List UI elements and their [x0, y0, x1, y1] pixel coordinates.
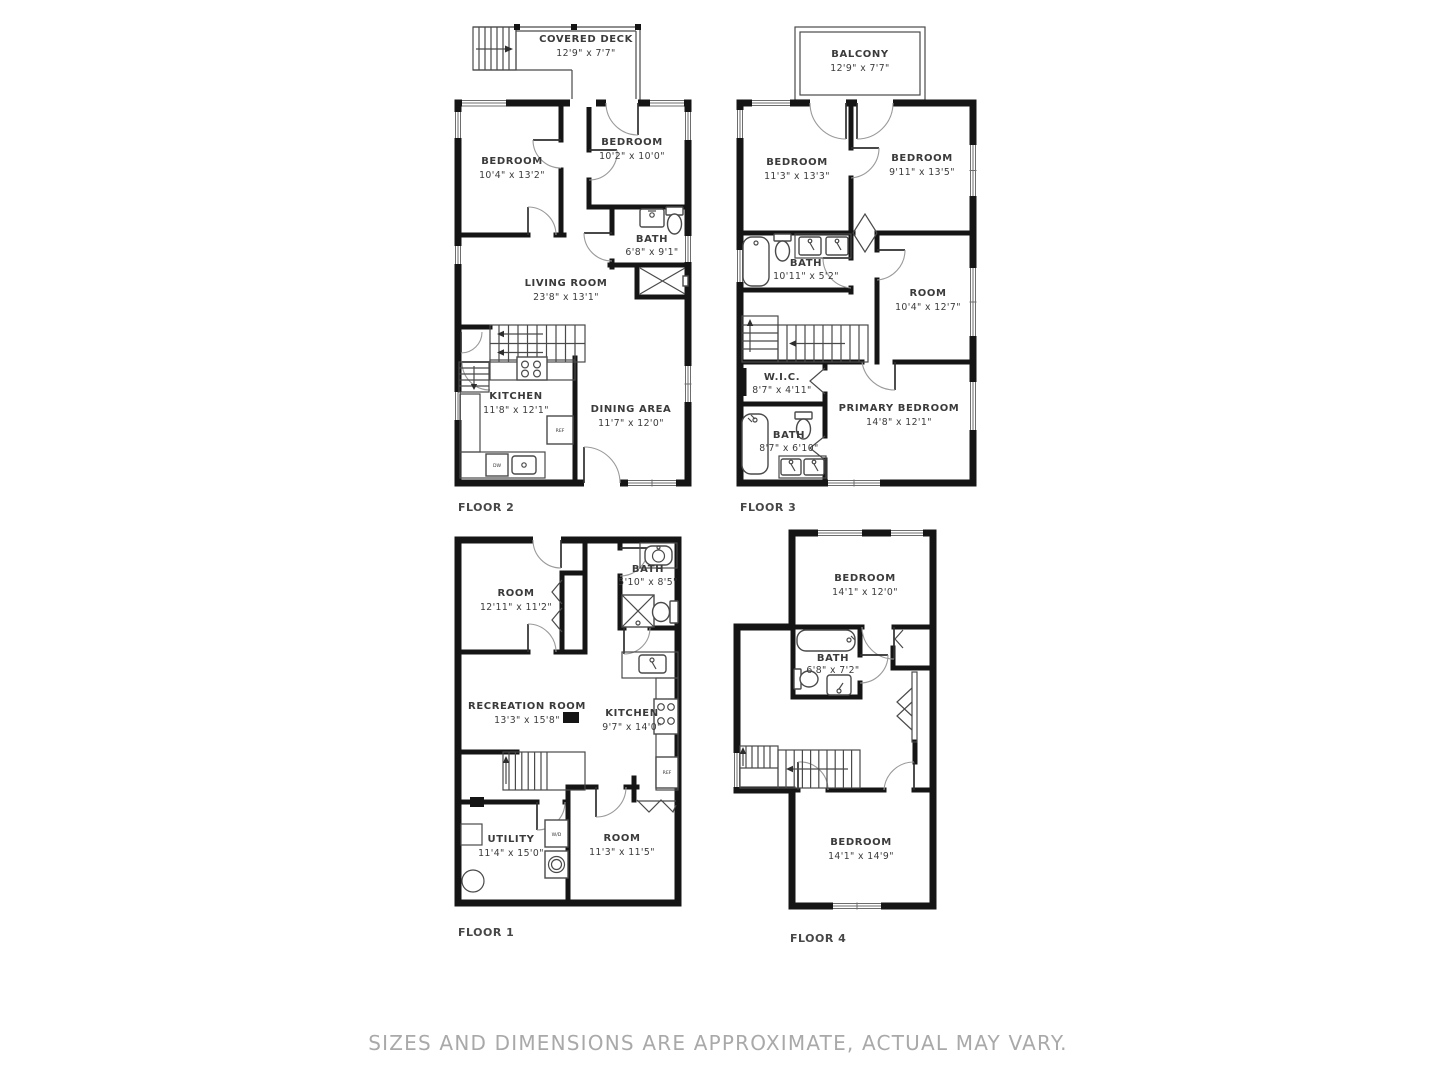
room-dims: 10'4" x 12'7"	[895, 302, 961, 313]
room-name: ROOM	[603, 833, 640, 844]
door	[877, 250, 905, 280]
door	[596, 787, 626, 817]
room-dims: 11'8" x 12'1"	[483, 405, 549, 416]
floorplan-svg: COVERED DECK 12'9" x 7'7"	[0, 0, 1440, 1080]
bath-fixtures	[640, 207, 683, 234]
shower	[622, 595, 654, 627]
refrigerator: REF	[656, 757, 678, 788]
ref-label: REF	[556, 428, 565, 434]
room-name: BEDROOM	[834, 573, 896, 584]
room-name: BATH	[632, 564, 664, 575]
room-dims: 6'8" x 9'1"	[625, 247, 678, 258]
covered-deck: COVERED DECK 12'9" x 7'7"	[473, 24, 641, 100]
room-name: BEDROOM	[830, 837, 892, 848]
window	[752, 100, 790, 107]
room-name: BEDROOM	[766, 157, 828, 168]
door	[862, 362, 895, 390]
double-swing-door	[853, 214, 877, 252]
sliding-closet	[897, 672, 917, 742]
door	[584, 233, 612, 261]
window	[828, 480, 880, 487]
bathtub	[743, 237, 769, 286]
door	[810, 99, 846, 139]
room-name: LIVING ROOM	[525, 278, 608, 289]
room-name: RECREATION ROOM	[468, 701, 586, 712]
door	[528, 207, 556, 235]
ref-label: REF	[663, 770, 672, 776]
room-name: W.I.C.	[764, 372, 800, 383]
room-dims: 11'4" x 15'0"	[478, 848, 544, 859]
room-dims: 10'4" x 13'2"	[479, 170, 545, 181]
sink	[799, 237, 821, 255]
room-dims: 9'11" x 13'5"	[889, 167, 955, 178]
door	[461, 332, 482, 353]
staircase	[742, 316, 868, 362]
bathtub	[797, 630, 855, 651]
floor-2-caption: FLOOR 2	[458, 501, 514, 514]
window	[462, 100, 506, 107]
room-name: UTILITY	[487, 834, 534, 845]
window	[833, 903, 881, 910]
room-dims: 5'10" x 8'5"	[618, 577, 677, 588]
door	[606, 99, 638, 135]
room-dims: 12'11" x 11'2"	[480, 602, 552, 613]
sink	[827, 675, 851, 695]
support-post	[563, 712, 579, 723]
room-dims: 13'3" x 15'8"	[494, 715, 560, 726]
room-dims: 14'8" x 12'1"	[866, 417, 932, 428]
stove	[517, 357, 547, 380]
sink	[640, 209, 664, 227]
floor-3-plan: BALCONY 12'9" x 7'7"	[737, 27, 977, 514]
window	[818, 530, 862, 537]
staircase	[740, 746, 860, 788]
door	[528, 624, 556, 652]
kitchen-fixtures: DW REF	[460, 357, 575, 478]
room-name: KITCHEN	[489, 391, 542, 402]
closet	[640, 268, 688, 294]
toilet	[666, 207, 683, 234]
door	[584, 447, 620, 487]
water-heater	[462, 870, 484, 892]
window	[628, 480, 676, 487]
sink	[804, 459, 824, 475]
folding-door	[895, 630, 903, 648]
room-dims: 14'1" x 14'9"	[828, 851, 894, 862]
washer-dryer: W/D	[545, 820, 568, 847]
room-name: BATH	[636, 234, 668, 245]
kitchen-fixtures: REF	[622, 652, 678, 790]
window	[685, 236, 692, 262]
sink	[512, 456, 536, 474]
dw-label: DW	[493, 463, 502, 469]
floor-4-caption: FLOOR 4	[790, 932, 846, 945]
room-dims: 11'3" x 11'5"	[589, 847, 655, 858]
room-name: BEDROOM	[481, 156, 543, 167]
window	[685, 112, 692, 140]
room-dims: 11'7" x 12'0"	[598, 418, 664, 429]
room-dims: 11'3" x 13'3"	[764, 171, 830, 182]
room-dims: 8'7" x 6'10"	[759, 443, 818, 454]
room-name: ROOM	[909, 288, 946, 299]
room-name: ROOM	[497, 588, 534, 599]
window	[970, 268, 977, 336]
dryer	[545, 851, 568, 878]
window	[455, 246, 462, 264]
floor-1-plan: REF W/D ROOM 12'11" x 11'2" BATH 5'10" x…	[458, 536, 678, 939]
window	[970, 145, 977, 196]
room-dims: 9'7" x 14'0"	[602, 722, 661, 733]
window	[685, 366, 692, 402]
sink	[826, 237, 848, 255]
disclaimer-text: SIZES AND DIMENSIONS ARE APPROXIMATE, AC…	[368, 1031, 1068, 1055]
floor-3-caption: FLOOR 3	[740, 501, 796, 514]
room-dims: 8'7" x 4'11"	[752, 385, 811, 396]
door	[533, 536, 561, 568]
room-name: BATH	[817, 653, 849, 664]
room-dims: 23'8" x 13'1"	[533, 292, 599, 303]
sink	[639, 655, 666, 673]
door	[857, 99, 893, 139]
door	[624, 628, 650, 654]
balcony-dims: 12'9" x 7'7"	[830, 63, 889, 74]
window	[455, 112, 462, 138]
room-name: BATH	[773, 430, 805, 441]
window	[970, 382, 977, 430]
room-name: BEDROOM	[891, 153, 953, 164]
chimney-block	[737, 368, 747, 396]
sink	[645, 546, 672, 565]
staircase	[503, 752, 585, 790]
freezer	[461, 824, 482, 845]
folding-door	[810, 368, 825, 394]
room-name: KITCHEN	[605, 708, 658, 719]
bay-windows	[637, 800, 676, 812]
window	[737, 110, 744, 138]
dishwasher: DW	[486, 454, 508, 476]
deck-dims: 12'9" x 7'7"	[556, 48, 615, 59]
sink	[781, 459, 801, 475]
floorplan-canvas: COVERED DECK 12'9" x 7'7"	[0, 0, 1440, 1080]
toilet	[774, 234, 791, 261]
window	[650, 100, 684, 107]
room-name: BEDROOM	[601, 137, 663, 148]
floor-1-caption: FLOOR 1	[458, 926, 514, 939]
balcony-name: BALCONY	[831, 49, 889, 60]
room-dims: 14'1" x 12'0"	[832, 587, 898, 598]
room-name: DINING AREA	[591, 404, 672, 415]
toilet	[653, 601, 679, 623]
deck-name: COVERED DECK	[539, 34, 634, 45]
wd-label: W/D	[552, 832, 562, 838]
refrigerator: REF	[547, 416, 573, 444]
room-dims: 10'2" x 10'0"	[599, 151, 665, 162]
room-dims: 10'11" x 5'2"	[773, 271, 839, 282]
room-name: BATH	[790, 258, 822, 269]
room-dims: 6'8" x 7'2"	[806, 665, 859, 676]
room-name: PRIMARY BEDROOM	[839, 403, 960, 414]
floor-4-plan: BEDROOM 14'1" x 12'0" BATH 6'8" x 7'2" B…	[734, 530, 934, 946]
window	[891, 530, 923, 537]
floor-2-plan: COVERED DECK 12'9" x 7'7"	[455, 24, 692, 514]
balcony: BALCONY 12'9" x 7'7"	[795, 27, 925, 100]
door-opening	[570, 99, 596, 107]
door	[884, 762, 914, 790]
door	[851, 148, 879, 178]
door	[860, 655, 888, 683]
